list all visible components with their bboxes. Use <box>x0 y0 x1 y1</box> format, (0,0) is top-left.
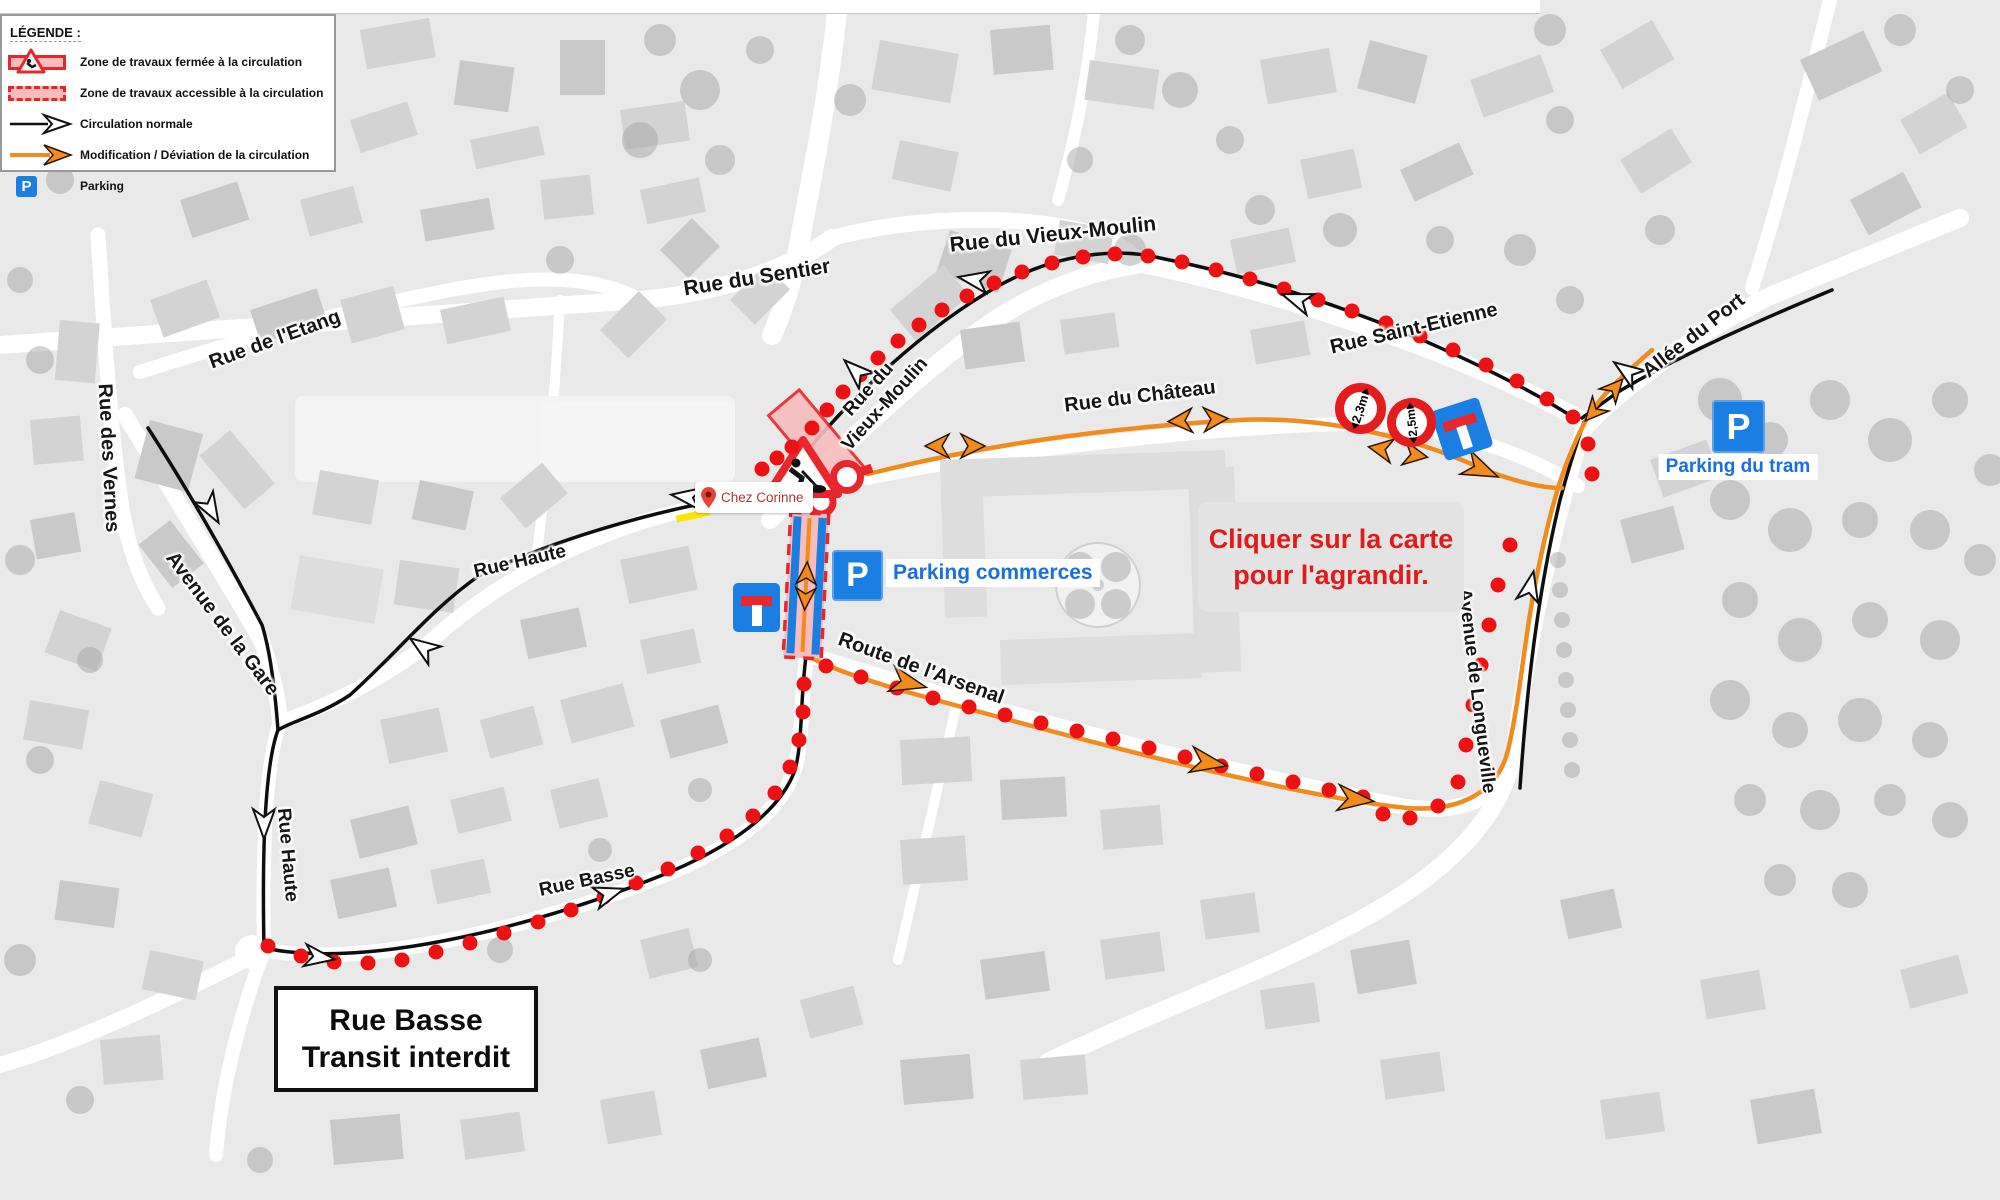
legend-item-label: Zone de travaux accessible à la circulat… <box>80 86 323 100</box>
parking-icon: P <box>8 175 80 197</box>
click-to-enlarge-note[interactable]: Cliquer sur la carte pour l'agrandir. <box>1198 502 1464 612</box>
roadworks-map-page: { "legend": { "title": "LÉGENDE :", "ite… <box>0 0 2000 1200</box>
deviation-arrow-icon <box>8 144 80 166</box>
legend-item-closed-zone: Zone de travaux fermée à la circulation <box>8 51 328 73</box>
parking-du-tram-icon: P <box>1712 400 1765 453</box>
legend-item-label: Circulation normale <box>80 117 193 131</box>
limit-sign-2-3m: 2,3m <box>1335 383 1386 434</box>
parking-commerces-icon: P <box>832 550 883 601</box>
legend-item-parking: P Parking <box>8 175 328 197</box>
legend-title: LÉGENDE : <box>10 25 81 42</box>
accessible-work-zone-icon <box>8 82 80 104</box>
parking-commerces-label: Parking commerces <box>886 559 1100 587</box>
map-pin-icon <box>701 487 716 508</box>
legend-item-accessible-zone: Zone de travaux accessible à la circulat… <box>8 82 328 104</box>
work-zone-strip <box>783 512 829 659</box>
legend-item-label: Modification / Déviation de la circulati… <box>80 148 309 162</box>
closed-work-zone-icon <box>8 51 80 73</box>
chez-corinne-label: Chez Corinne <box>695 482 813 513</box>
legend-item-deviation: Modification / Déviation de la circulati… <box>8 144 328 166</box>
erased-area <box>295 396 735 482</box>
normal-traffic-arrow-icon <box>8 113 80 135</box>
legend: LÉGENDE : Zone de travaux fermée à la ci… <box>0 14 336 172</box>
parking-du-tram-label: Parking du tram <box>1659 454 1818 480</box>
legend-item-label: Zone de travaux fermée à la circulation <box>80 55 302 69</box>
transit-interdit-box: Rue Basse Transit interdit <box>274 986 538 1092</box>
legend-item-label: Parking <box>80 179 124 193</box>
dead-end-sign-icon <box>733 583 780 632</box>
top-margin <box>0 0 1540 14</box>
legend-item-normal-traffic: Circulation normale <box>8 113 328 135</box>
